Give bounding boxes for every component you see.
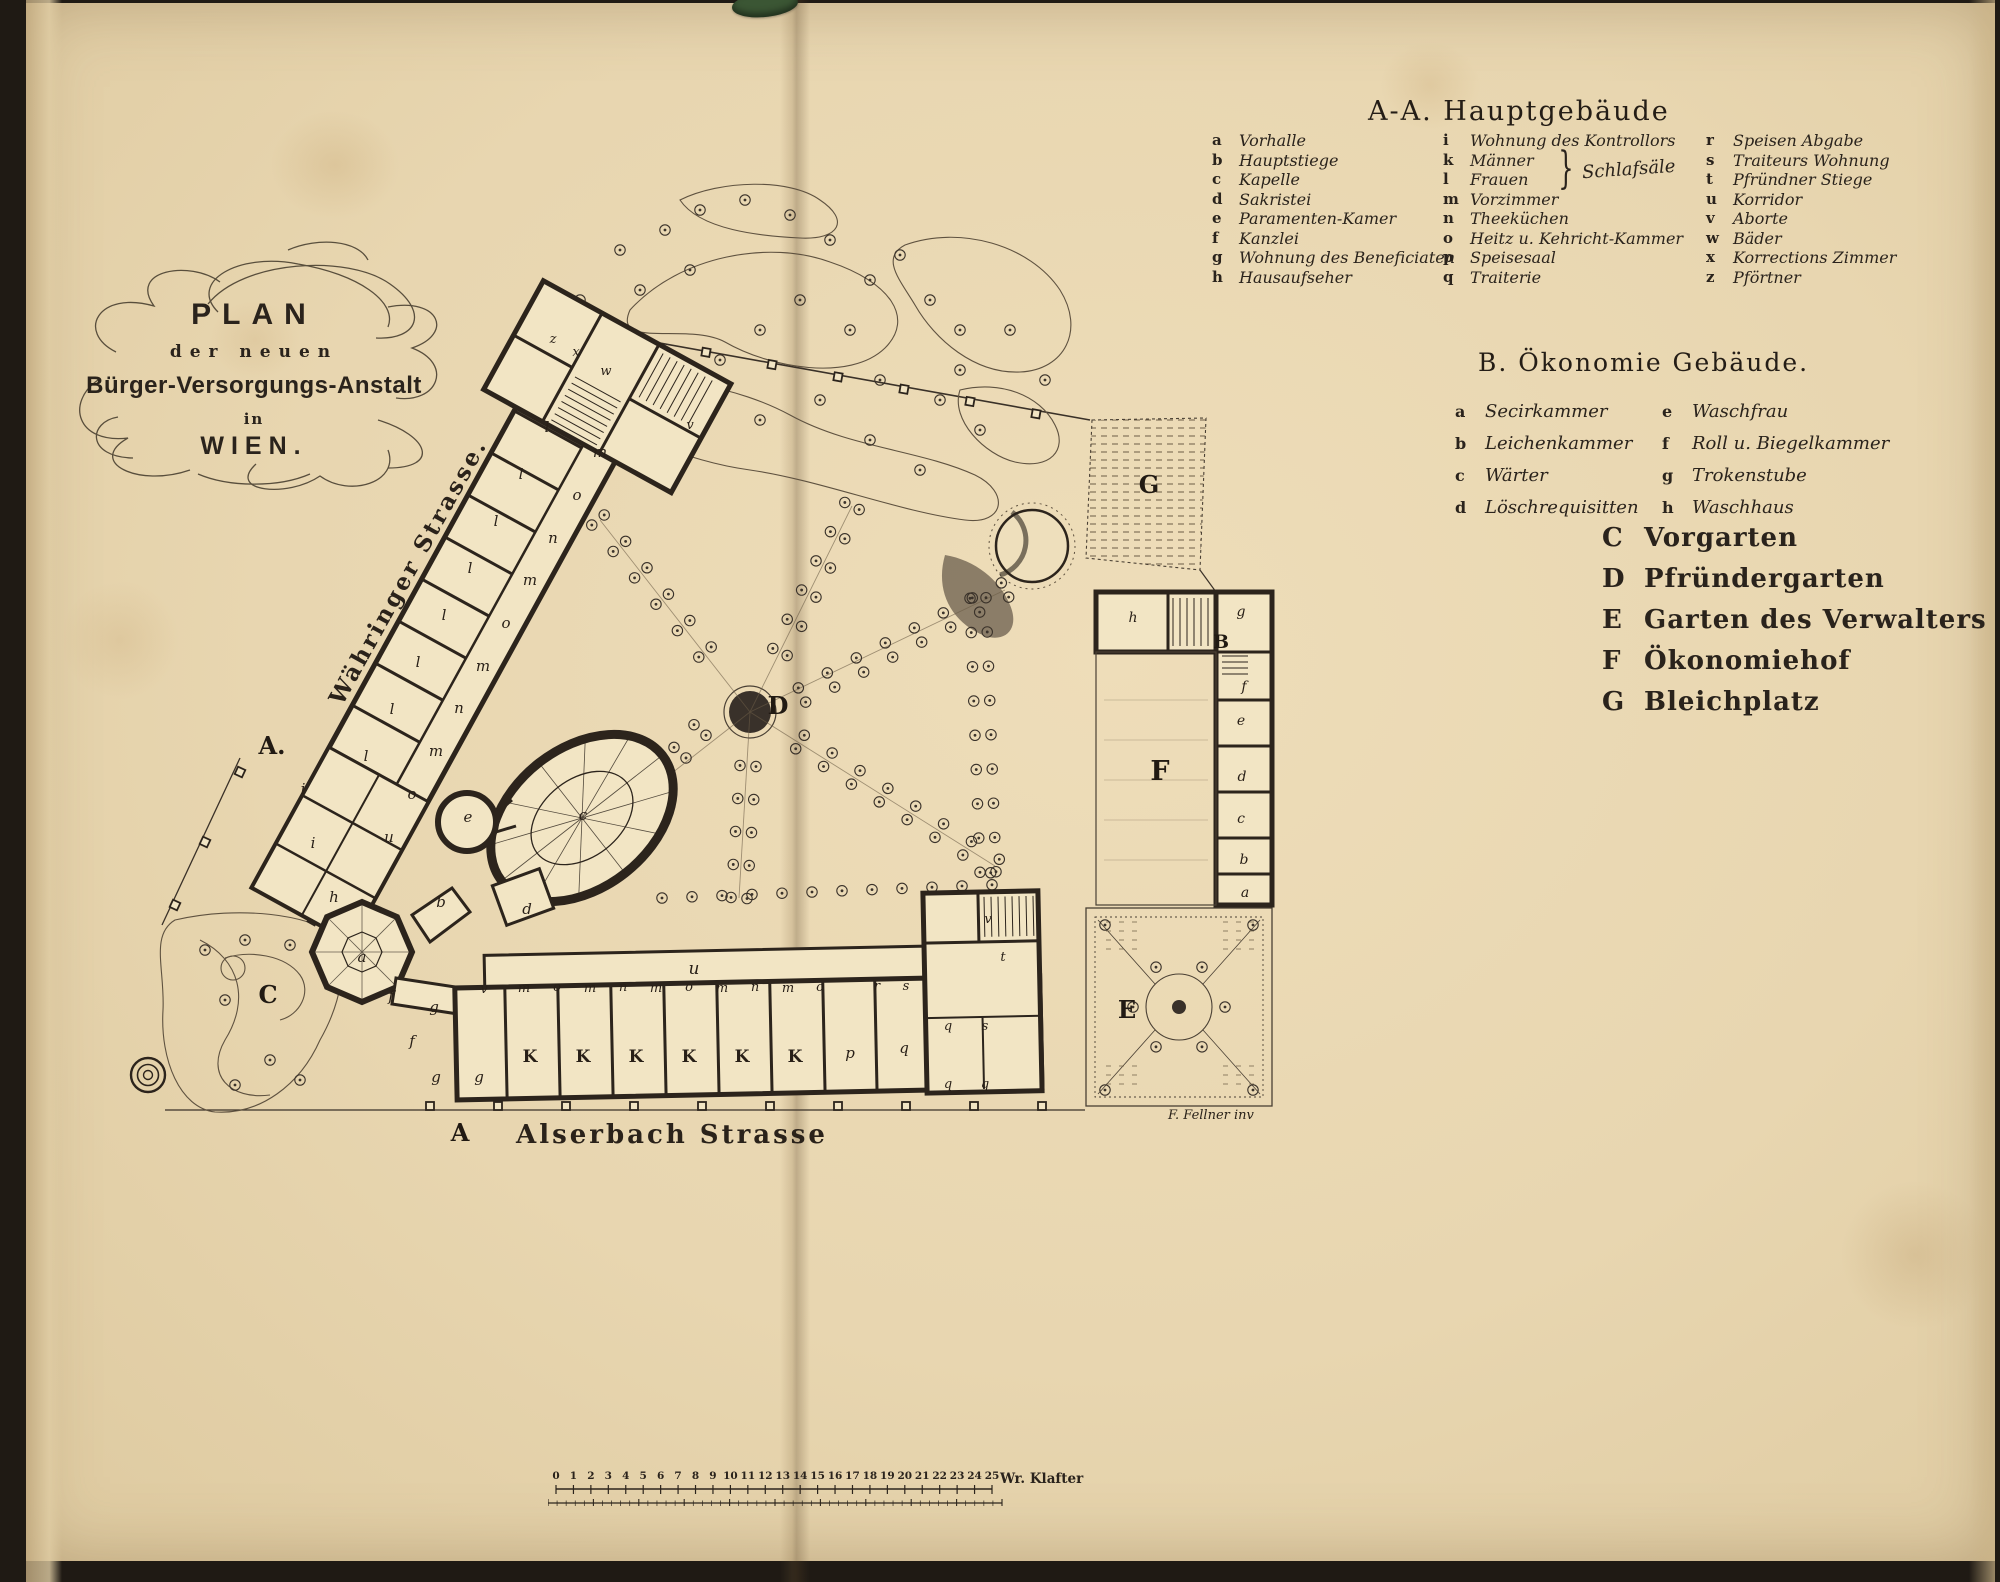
fence-post bbox=[562, 1102, 570, 1110]
tree-icon bbox=[855, 765, 865, 775]
corridor-connector bbox=[392, 978, 462, 1014]
room-label: s bbox=[982, 1019, 989, 1034]
scale-number: 18 bbox=[863, 1470, 878, 1482]
tree-icon bbox=[1197, 1042, 1207, 1052]
tree-icon bbox=[740, 195, 750, 205]
room-label: n bbox=[751, 980, 759, 995]
tree-icon bbox=[985, 695, 995, 705]
tree-icon bbox=[990, 832, 1000, 842]
legend-key: r bbox=[1706, 131, 1733, 151]
tree-icon bbox=[938, 608, 948, 618]
tree-icon bbox=[846, 779, 856, 789]
room-label: o bbox=[407, 785, 416, 803]
tree-icon bbox=[825, 235, 835, 245]
room-label: d bbox=[1238, 769, 1247, 785]
legend-label: Speisen Abgabe bbox=[1733, 131, 1863, 151]
legend-key: e bbox=[1662, 396, 1692, 428]
room-label: i bbox=[301, 780, 306, 798]
scale-number: 15 bbox=[810, 1470, 825, 1482]
tree-icon bbox=[615, 245, 625, 255]
room-label: b bbox=[1240, 852, 1249, 868]
room-label: l bbox=[442, 606, 447, 624]
legend-item: vAborte bbox=[1706, 209, 1896, 229]
legend-label: Pförtner bbox=[1733, 268, 1801, 288]
scale-number: 7 bbox=[674, 1470, 681, 1482]
tree-icon bbox=[807, 887, 817, 897]
legend-key: E bbox=[1602, 600, 1644, 641]
scale-number: 4 bbox=[622, 1470, 629, 1482]
tree-icon bbox=[845, 325, 855, 335]
legend-label: Traiterie bbox=[1470, 268, 1541, 288]
room-label: o bbox=[816, 980, 824, 995]
room-label: v bbox=[984, 912, 992, 927]
legend-label: Hausaufseher bbox=[1239, 268, 1352, 288]
scale-number: 13 bbox=[775, 1470, 790, 1482]
tree-icon bbox=[768, 643, 778, 653]
room-label: b bbox=[436, 893, 446, 911]
gazebo bbox=[131, 1058, 165, 1092]
legend-item: pSpeisesaal bbox=[1443, 248, 1683, 268]
tree-icon bbox=[663, 589, 673, 599]
tree-icon bbox=[265, 1055, 275, 1065]
legend-item: DPfründergarten bbox=[1602, 559, 1987, 600]
fence-post bbox=[170, 900, 181, 911]
tree-icon bbox=[987, 764, 997, 774]
legend-item: dSakristei bbox=[1212, 190, 1455, 210]
scale-numbers: 0123456789101112131415161718192021222324… bbox=[548, 1470, 1068, 1483]
legend-item: aVorhalle bbox=[1212, 131, 1455, 151]
scale-number: 22 bbox=[932, 1470, 947, 1482]
room-label: f bbox=[408, 1032, 417, 1050]
tree-icon bbox=[875, 375, 885, 385]
room-label: g bbox=[429, 998, 439, 1016]
room-label: q bbox=[981, 1077, 989, 1092]
tree-icon bbox=[800, 697, 810, 707]
legend-key: i bbox=[1443, 131, 1470, 151]
tree-icon bbox=[599, 510, 609, 520]
tree-icon bbox=[1220, 1002, 1230, 1012]
legend-key: f bbox=[1212, 229, 1239, 249]
scale-number: 9 bbox=[709, 1470, 716, 1482]
tree-icon bbox=[887, 652, 897, 662]
legend-item: rSpeisen Abgabe bbox=[1706, 131, 1896, 151]
tree-icon bbox=[608, 546, 618, 556]
tree-icon bbox=[799, 730, 809, 740]
tree-icon bbox=[672, 625, 682, 635]
legend-item: aSecirkammer bbox=[1455, 396, 1639, 428]
tree-icon bbox=[815, 395, 825, 405]
legend-key: m bbox=[1443, 190, 1470, 210]
legend-key: b bbox=[1212, 151, 1239, 171]
scale-bar: 0123456789101112131415161718192021222324… bbox=[548, 1470, 1068, 1514]
tree-icon bbox=[975, 425, 985, 435]
tree-icon bbox=[902, 814, 912, 824]
legend-key: l bbox=[1443, 170, 1470, 190]
legend-a-heading: A-A. Hauptgebäude bbox=[1368, 96, 1670, 127]
legend-label: Männer bbox=[1470, 151, 1534, 171]
legend-key: C bbox=[1602, 518, 1644, 559]
tree-icon bbox=[1040, 375, 1050, 385]
tree-icon bbox=[957, 881, 967, 891]
room-label: x bbox=[572, 345, 580, 360]
scale-number: 3 bbox=[605, 1470, 612, 1482]
room-label: l bbox=[416, 653, 421, 671]
tree-icon bbox=[295, 1075, 305, 1085]
legend-key: f bbox=[1662, 428, 1692, 460]
tree-icon bbox=[701, 730, 711, 740]
room-label: n bbox=[548, 529, 558, 547]
legend-label: Bäder bbox=[1733, 229, 1782, 249]
tree-icon bbox=[930, 832, 940, 842]
room-label: a bbox=[1241, 885, 1249, 901]
legend-item: sTraiteurs Wohnung bbox=[1706, 151, 1896, 171]
tree-icon bbox=[695, 205, 705, 215]
pond bbox=[942, 503, 1075, 638]
tree-icon bbox=[883, 783, 893, 793]
tree-icon bbox=[970, 730, 980, 740]
legend-b-column-1: aSecirkammerbLeichenkammercWärterdLöschr… bbox=[1455, 396, 1639, 524]
legend-item: tPfründner Stiege bbox=[1706, 170, 1896, 190]
legend-label: Sakristei bbox=[1239, 190, 1311, 210]
legend-label: Speisesaal bbox=[1470, 248, 1556, 268]
scale-number: 14 bbox=[793, 1470, 808, 1482]
tree-icon bbox=[969, 696, 979, 706]
room-label: K bbox=[629, 1047, 645, 1067]
tree-icon bbox=[837, 886, 847, 896]
tree-icon bbox=[874, 797, 884, 807]
legend-key: e bbox=[1212, 209, 1239, 229]
legend-key: k bbox=[1443, 151, 1470, 171]
room-label: l bbox=[519, 465, 524, 483]
room-label: o bbox=[501, 614, 510, 632]
tree-icon bbox=[629, 573, 639, 583]
tree-icon bbox=[811, 592, 821, 602]
tree-icon bbox=[240, 935, 250, 945]
scale-number: 23 bbox=[950, 1470, 965, 1482]
legend-label: Waschfrau bbox=[1692, 396, 1788, 428]
room-label: l bbox=[545, 418, 550, 436]
room-label: t bbox=[1000, 950, 1006, 965]
tree-icon bbox=[975, 867, 985, 877]
tree-icon bbox=[730, 826, 740, 836]
tree-icon bbox=[858, 667, 868, 677]
legend-key: u bbox=[1706, 190, 1733, 210]
room-label: p bbox=[845, 1044, 855, 1062]
room-label: g bbox=[474, 1068, 484, 1086]
legend-label: Trokenstube bbox=[1692, 460, 1807, 492]
tree-icon bbox=[1151, 1042, 1161, 1052]
legend-item: qTraiterie bbox=[1443, 268, 1683, 288]
legend-label: Theeküchen bbox=[1470, 209, 1569, 229]
fence-post bbox=[494, 1102, 502, 1110]
room-label: q bbox=[899, 1039, 909, 1057]
room-label: w bbox=[600, 364, 611, 379]
legend-label: Vorhalle bbox=[1239, 131, 1306, 151]
tree-icon bbox=[635, 285, 645, 295]
legend-label: Wärter bbox=[1485, 460, 1548, 492]
tree-icon bbox=[987, 880, 997, 890]
scale-number: 17 bbox=[845, 1470, 860, 1482]
legend-item: cWärter bbox=[1455, 460, 1639, 492]
tree-icon bbox=[955, 365, 965, 375]
scale-ticks bbox=[548, 1483, 1068, 1513]
legend-item: FÖkonomiehof bbox=[1602, 641, 1987, 682]
scale-number: 19 bbox=[880, 1470, 895, 1482]
fence-post bbox=[965, 397, 974, 406]
south-wing bbox=[453, 891, 1042, 1103]
scale-number: 25 bbox=[985, 1470, 1000, 1482]
tree-icon bbox=[755, 415, 765, 425]
tree-icon bbox=[1005, 325, 1015, 335]
tree-icon bbox=[669, 742, 679, 752]
area-label: B bbox=[1213, 631, 1229, 653]
legend-label: Heitz u. Kehricht-Kammer bbox=[1470, 229, 1683, 249]
legend-label: Kapelle bbox=[1239, 170, 1300, 190]
tree-icon bbox=[715, 355, 725, 365]
room-label: r bbox=[874, 979, 881, 994]
scale-number: 12 bbox=[758, 1470, 773, 1482]
tree-icon bbox=[935, 395, 945, 405]
tree-icon bbox=[971, 764, 981, 774]
tree-icon bbox=[657, 893, 667, 903]
scale-number: 11 bbox=[741, 1470, 756, 1482]
tree-icon bbox=[651, 599, 661, 609]
tree-icon bbox=[230, 1080, 240, 1090]
fence-post bbox=[1031, 409, 1040, 418]
map-title-line: WIEN. bbox=[58, 432, 450, 461]
tree-icon bbox=[986, 730, 996, 740]
legend-item: bLeichenkammer bbox=[1455, 428, 1639, 460]
tree-icon bbox=[782, 650, 792, 660]
scale-number: 2 bbox=[587, 1470, 594, 1482]
legend-key: a bbox=[1212, 131, 1239, 151]
tree-icon bbox=[685, 615, 695, 625]
room-label: n bbox=[619, 980, 627, 995]
tree-icon bbox=[751, 761, 761, 771]
room-label: q bbox=[944, 1077, 952, 1092]
room-label: K bbox=[576, 1047, 592, 1067]
legend-item: wBäder bbox=[1706, 229, 1896, 249]
room-label: d bbox=[522, 900, 532, 918]
legend-key: g bbox=[1212, 248, 1239, 268]
legend-key: o bbox=[1443, 229, 1470, 249]
room-label: K bbox=[682, 1047, 698, 1067]
room-label: l bbox=[390, 700, 395, 718]
room-label: h bbox=[1128, 610, 1137, 626]
legend-key: h bbox=[1212, 268, 1239, 288]
room-label: v bbox=[686, 418, 694, 433]
fence-post bbox=[902, 1102, 910, 1110]
tree-icon bbox=[285, 940, 295, 950]
legend-item: EGarten des Verwalters bbox=[1602, 600, 1987, 641]
tree-icon bbox=[988, 798, 998, 808]
legend-label: Hauptstiege bbox=[1239, 151, 1338, 171]
room-label: m bbox=[593, 443, 607, 461]
legend-item: zPförtner bbox=[1706, 268, 1896, 288]
legend-item: xKorrections Zimmer bbox=[1706, 248, 1896, 268]
room-label: o bbox=[572, 486, 581, 504]
legend-key: c bbox=[1455, 460, 1485, 492]
legend-key: a bbox=[1455, 396, 1485, 428]
room-label: e bbox=[464, 808, 473, 826]
area-label: G bbox=[1139, 470, 1160, 499]
tree-icon bbox=[796, 621, 806, 631]
legend-key: d bbox=[1212, 190, 1239, 210]
tree-icon bbox=[818, 761, 828, 771]
fence-post bbox=[970, 1102, 978, 1110]
map-title-line: Bürger-Versorgungs-Anstalt bbox=[58, 372, 450, 400]
legend-label: Korrections Zimmer bbox=[1733, 248, 1896, 268]
tree-icon bbox=[706, 642, 716, 652]
legend-label: Pfründner Stiege bbox=[1733, 170, 1872, 190]
room-label: m bbox=[429, 742, 443, 760]
legend-item: eWaschfrau bbox=[1662, 396, 1889, 428]
legend-item: hHausaufseher bbox=[1212, 268, 1455, 288]
tree-icon bbox=[880, 638, 890, 648]
room-label: h bbox=[329, 888, 339, 906]
signature-text: F. Fellner inv bbox=[1167, 1108, 1255, 1123]
area-label: C bbox=[258, 980, 277, 1009]
room-label: n bbox=[454, 699, 464, 717]
legend-item: eParamenten-Kamer bbox=[1212, 209, 1455, 229]
fence-post bbox=[200, 837, 211, 848]
tree-icon bbox=[915, 465, 925, 475]
verwalter-garden bbox=[1086, 908, 1272, 1106]
title-cartouche: PLAN der neuen Bürger-Versorgungs-Anstal… bbox=[58, 212, 450, 492]
legend-key: t bbox=[1706, 170, 1733, 190]
tree-icon bbox=[983, 661, 993, 671]
tree-icon bbox=[991, 867, 1001, 877]
room-label: c bbox=[579, 806, 588, 824]
tree-icon bbox=[854, 504, 864, 514]
tree-icon bbox=[1197, 962, 1207, 972]
legend-key: n bbox=[1443, 209, 1470, 229]
legend-key: c bbox=[1212, 170, 1239, 190]
tree-icon bbox=[955, 325, 965, 335]
fence-post bbox=[833, 372, 842, 381]
tree-icon bbox=[938, 819, 948, 829]
tree-icon bbox=[840, 534, 850, 544]
fence-post bbox=[899, 385, 908, 394]
brace-glyph: } bbox=[1558, 149, 1573, 189]
legend-key: z bbox=[1706, 268, 1733, 288]
tree-icon bbox=[867, 884, 877, 894]
schlafsaele-label: Schlafsäle bbox=[1581, 155, 1676, 182]
scale-number: 8 bbox=[692, 1470, 699, 1482]
area-label: D bbox=[768, 691, 789, 720]
fence-post bbox=[235, 767, 246, 778]
map-title-line: der neuen bbox=[58, 342, 450, 362]
tree-icon bbox=[865, 435, 875, 445]
tree-icon bbox=[733, 793, 743, 803]
map-title-line: in bbox=[58, 410, 450, 428]
legend-label: Vorgarten bbox=[1644, 518, 1798, 559]
tree-icon bbox=[728, 859, 738, 869]
legend-label: Ökonomiehof bbox=[1644, 641, 1851, 682]
legend-item: bHauptstiege bbox=[1212, 151, 1455, 171]
tree-icon bbox=[994, 854, 1004, 864]
tree-icon bbox=[687, 892, 697, 902]
tree-icon bbox=[909, 623, 919, 633]
tree-icon bbox=[620, 536, 630, 546]
room-label: i bbox=[311, 834, 316, 852]
room-label: q bbox=[944, 1019, 952, 1034]
tree-icon bbox=[825, 526, 835, 536]
tree-icon bbox=[958, 850, 968, 860]
legend-label: Bleichplatz bbox=[1644, 682, 1820, 723]
engraver-signature: F. Fellner inv bbox=[1167, 1108, 1255, 1123]
tree-icon bbox=[925, 295, 935, 305]
fence-post bbox=[698, 1102, 706, 1110]
legend-label: Vorzimmer bbox=[1470, 190, 1558, 210]
legend-label: Paramenten-Kamer bbox=[1239, 209, 1396, 229]
scale-number: 5 bbox=[640, 1470, 647, 1482]
scale-number: 0 bbox=[552, 1470, 559, 1482]
legend-item: cKapelle bbox=[1212, 170, 1455, 190]
tree-icon bbox=[796, 585, 806, 595]
tree-icon bbox=[587, 520, 597, 530]
legend-item: gWohnung des Beneficiaten bbox=[1212, 248, 1455, 268]
tree-icon bbox=[744, 860, 754, 870]
tree-icon bbox=[785, 210, 795, 220]
legend-key: G bbox=[1602, 682, 1644, 723]
legend-item: oHeitz u. Kehricht-Kammer bbox=[1443, 229, 1683, 249]
scale-number: 1 bbox=[570, 1470, 577, 1482]
legend-key: b bbox=[1455, 428, 1485, 460]
legend-label: Aborte bbox=[1733, 209, 1788, 229]
tree-icon bbox=[825, 563, 835, 573]
fence-post bbox=[426, 1102, 434, 1110]
scale-unit: Wr. Klafter bbox=[1000, 1471, 1083, 1487]
tree-icon bbox=[811, 556, 821, 566]
tree-icon bbox=[793, 683, 803, 693]
room-label: m bbox=[518, 981, 530, 996]
tree-icon bbox=[865, 275, 875, 285]
legend-item: nTheeküchen bbox=[1443, 209, 1683, 229]
room-label: g bbox=[431, 1068, 441, 1086]
tree-icon bbox=[782, 614, 792, 624]
tree-icon bbox=[735, 760, 745, 770]
tree-icon bbox=[916, 637, 926, 647]
tree-icon bbox=[897, 883, 907, 893]
scale-number: 6 bbox=[657, 1470, 664, 1482]
room-label: z bbox=[549, 332, 557, 347]
schlafsaele-note: } Schlafsäle bbox=[1552, 149, 1676, 189]
tree-icon bbox=[840, 497, 850, 507]
legend-b-heading: B. Ökonomie Gebäude. bbox=[1478, 348, 1809, 377]
tree-icon bbox=[642, 563, 652, 573]
fence-post bbox=[1038, 1102, 1046, 1110]
fence-post bbox=[766, 1102, 774, 1110]
tree-icon bbox=[777, 888, 787, 898]
legend-item: fKanzlei bbox=[1212, 229, 1455, 249]
legend-label: Pfründergarten bbox=[1644, 559, 1885, 600]
area-label: E bbox=[1118, 995, 1136, 1024]
legend-label: Roll u. Biegelkammer bbox=[1692, 428, 1889, 460]
fence-post bbox=[701, 348, 710, 357]
room-label: o bbox=[553, 980, 561, 995]
legend-item: fRoll u. Biegelkammer bbox=[1662, 428, 1889, 460]
tree-icon bbox=[220, 995, 230, 1005]
legend-key: s bbox=[1706, 151, 1733, 171]
tree-icon bbox=[749, 794, 759, 804]
room-label: K bbox=[735, 1047, 751, 1067]
legend-label: Korridor bbox=[1733, 190, 1802, 210]
tree-icon bbox=[795, 295, 805, 305]
legend-key: g bbox=[1662, 460, 1692, 492]
room-label: K bbox=[523, 1047, 539, 1067]
fence-post bbox=[834, 1102, 842, 1110]
